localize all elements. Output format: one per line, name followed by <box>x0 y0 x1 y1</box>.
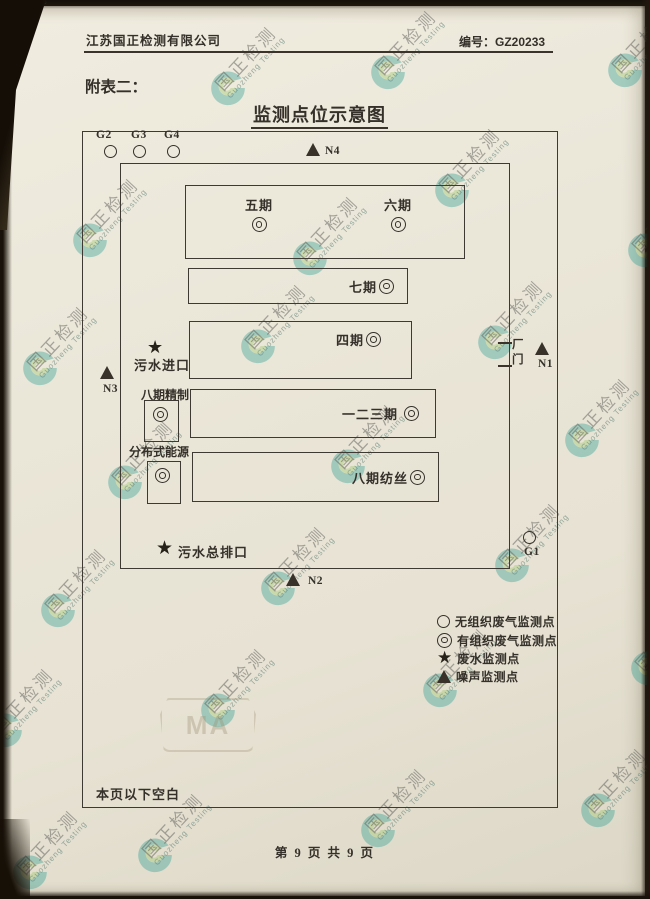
noise-point-n3-icon <box>100 366 114 379</box>
wastewater-legend-icon: ★ <box>437 650 452 667</box>
gate-label-top: 厂 <box>512 336 524 352</box>
wastewater-main-outlet-icon: ★ <box>156 539 173 558</box>
legend-item-noise: 噪声监测点 <box>437 668 519 684</box>
building-phase4: 四期 <box>189 321 412 379</box>
organized-gas-point-phase8-refining-icon <box>153 407 168 422</box>
organized-gas-point-phase8-spinning-icon <box>410 470 425 485</box>
building-label-phase5: 五期 <box>245 195 273 214</box>
organized-gas-point-phase6-icon <box>391 217 406 232</box>
noise-point-n1-icon <box>535 342 549 355</box>
legend-label: 无组织废气监测点 <box>455 613 555 630</box>
building-phase123: 一二三期 <box>190 389 436 438</box>
point-label-g3: G3 <box>131 129 147 141</box>
blank-below-note: 本页以下空白 <box>96 784 180 803</box>
gate-tick-bottom <box>498 365 512 367</box>
legend-label: 废水监测点 <box>457 650 520 667</box>
diagram-title: 监测点位示意图 <box>251 105 388 129</box>
company-name: 江苏国正检测有限公司 <box>86 30 221 49</box>
organized-gas-point-phase5-icon <box>252 217 267 232</box>
page-content: 江苏国正检测有限公司 编号：GZ20233 附表二： 监测点位示意图 G2 G3… <box>0 0 650 899</box>
organized-gas-legend-icon <box>437 633 452 648</box>
building-label-phase7: 七期 <box>349 277 377 296</box>
gate-label-bottom: 门 <box>512 351 524 367</box>
point-label-n2: N2 <box>308 575 323 587</box>
organized-gas-point-phase7-icon <box>379 279 394 294</box>
legend-label: 噪声监测点 <box>456 668 519 685</box>
legend-item-organized-gas: 有组织废气监测点 <box>437 632 557 648</box>
organized-gas-point-phase123-icon <box>404 406 419 421</box>
building-phase7: 七期 <box>188 268 408 304</box>
organized-gas-point-phase4-icon <box>366 332 381 347</box>
point-label-g2: G2 <box>96 129 112 141</box>
legend-item-wastewater: ★ 废水监测点 <box>437 650 520 666</box>
wastewater-main-outlet-label: 污水总排口 <box>178 542 248 561</box>
noise-legend-icon <box>437 670 451 683</box>
building-label-distributed-energy: 分布式能源 <box>129 443 189 460</box>
point-label-n4: N4 <box>325 145 340 157</box>
attachment-label: 附表二： <box>85 75 147 97</box>
gate-tick-top <box>498 342 512 344</box>
page-number: 第 9 页 共 9 页 <box>0 842 650 861</box>
legend-label: 有组织废气监测点 <box>457 632 557 649</box>
unorganized-gas-legend-icon <box>437 615 450 628</box>
noise-point-n2-icon <box>286 573 300 586</box>
point-label-g1: G1 <box>524 546 540 558</box>
unorganized-gas-point-g3-icon <box>133 145 146 158</box>
unorganized-gas-point-g1-icon <box>523 531 536 544</box>
wastewater-inlet-label: 污水进口 <box>134 355 190 374</box>
doc-number-label: 编号： <box>459 35 495 49</box>
building-distributed-energy <box>147 461 181 504</box>
legend-item-unorganized-gas: 无组织废气监测点 <box>437 613 555 629</box>
cma-stamp: MA <box>160 698 256 752</box>
scanned-report-page: { "watermark": { "cn": "国正检测", "en": "Gu… <box>0 0 650 899</box>
point-label-n1: N1 <box>538 358 553 370</box>
building-label-phase6: 六期 <box>384 195 412 214</box>
point-label-g4: G4 <box>164 129 180 141</box>
noise-point-n4-icon <box>306 143 320 156</box>
doc-number-value: GZ20233 <box>495 35 545 49</box>
building-phase8-spinning: 八期纺丝 <box>192 452 439 502</box>
unorganized-gas-point-g2-icon <box>104 145 117 158</box>
building-label-phase123: 一二三期 <box>342 404 398 423</box>
building-phase8-refining <box>144 400 179 442</box>
header-rule <box>84 51 553 53</box>
building-label-phase4: 四期 <box>336 330 364 349</box>
building-label-phase8-spinning: 八期纺丝 <box>352 468 408 487</box>
point-label-n3: N3 <box>103 383 118 395</box>
organized-gas-point-distributed-energy-icon <box>155 468 170 483</box>
unorganized-gas-point-g4-icon <box>167 145 180 158</box>
